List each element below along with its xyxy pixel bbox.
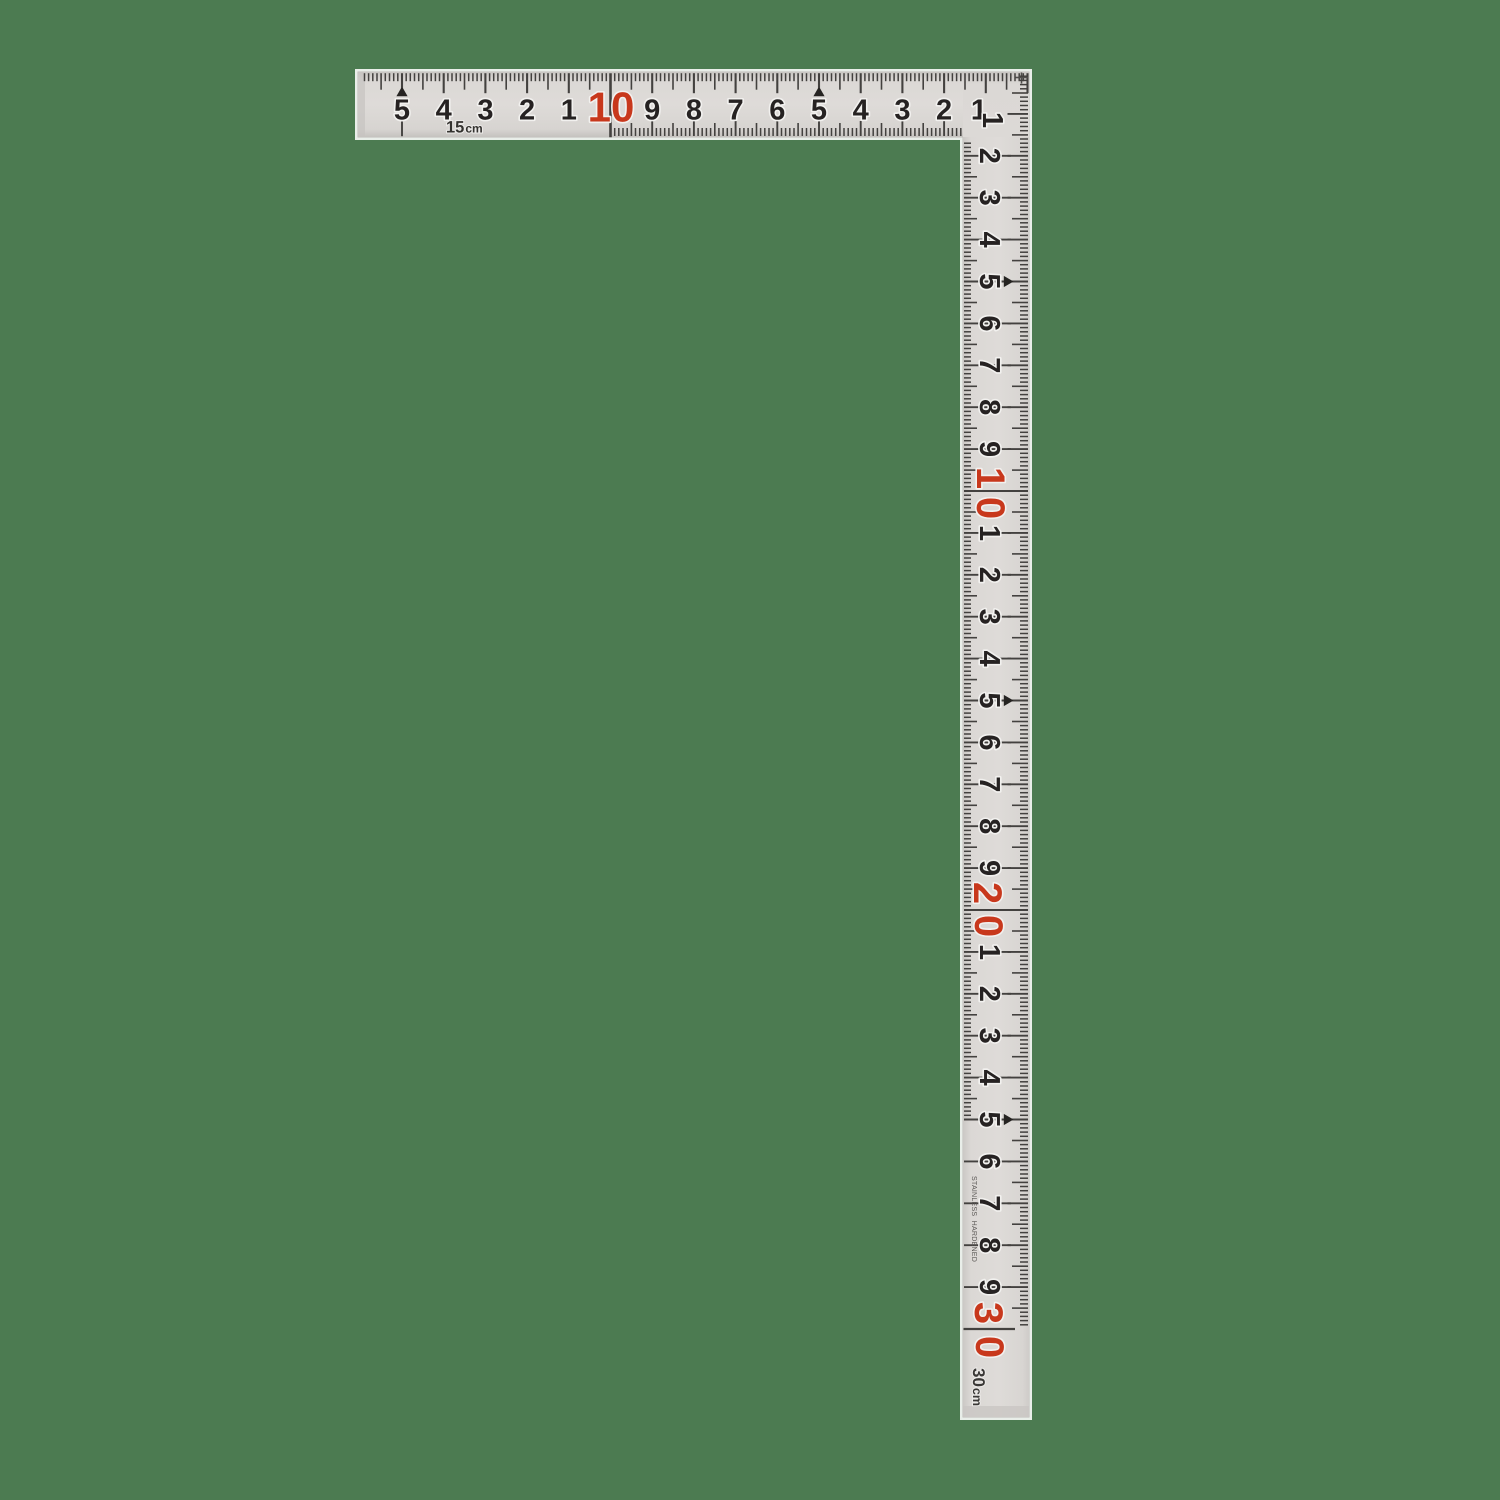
svg-text:5: 5 <box>811 95 827 127</box>
svg-text:8: 8 <box>973 818 1005 834</box>
svg-text:6: 6 <box>973 315 1005 331</box>
svg-text:3: 3 <box>966 1302 1010 1324</box>
svg-text:2: 2 <box>519 95 535 127</box>
svg-text:1: 1 <box>976 112 1008 128</box>
svg-text:3: 3 <box>973 609 1005 625</box>
svg-text:3: 3 <box>973 190 1005 206</box>
svg-text:3: 3 <box>973 1028 1005 1044</box>
svg-text:4: 4 <box>853 95 869 127</box>
svg-text:9: 9 <box>973 441 1005 457</box>
svg-text:15cm: 15cm <box>446 119 483 137</box>
svg-text:1: 1 <box>973 944 1005 960</box>
svg-text:5: 5 <box>973 273 1005 289</box>
svg-text:8: 8 <box>686 95 702 127</box>
svg-text:9: 9 <box>973 860 1005 876</box>
svg-text:STAINLESS HARDENED: STAINLESS HARDENED <box>970 1176 978 1262</box>
svg-text:7: 7 <box>973 776 1005 792</box>
svg-text:2: 2 <box>965 882 1009 904</box>
svg-text:4: 4 <box>973 651 1005 667</box>
svg-text:9: 9 <box>973 1279 1005 1295</box>
svg-text:8: 8 <box>973 399 1005 415</box>
svg-text:9: 9 <box>644 95 660 127</box>
svg-text:5: 5 <box>973 1111 1005 1127</box>
svg-text:6: 6 <box>973 734 1005 750</box>
svg-text:2: 2 <box>973 567 1005 583</box>
svg-text:2: 2 <box>973 148 1005 164</box>
svg-text:4: 4 <box>973 1070 1005 1086</box>
svg-text:2: 2 <box>936 95 952 127</box>
svg-text:1: 1 <box>973 525 1005 541</box>
svg-text:5: 5 <box>973 692 1005 708</box>
svg-text:1: 1 <box>561 95 577 127</box>
svg-text:7: 7 <box>973 357 1005 373</box>
svg-text:4: 4 <box>973 232 1005 248</box>
svg-text:0: 0 <box>968 497 1012 519</box>
svg-text:6: 6 <box>973 1153 1005 1169</box>
svg-text:10: 10 <box>588 84 635 131</box>
svg-text:7: 7 <box>728 95 744 127</box>
svg-text:0: 0 <box>967 1336 1011 1358</box>
svg-text:0: 0 <box>966 915 1010 937</box>
svg-text:3: 3 <box>894 95 910 127</box>
svg-text:6: 6 <box>769 95 785 127</box>
svg-text:2: 2 <box>973 986 1005 1002</box>
svg-text:1: 1 <box>968 467 1012 489</box>
